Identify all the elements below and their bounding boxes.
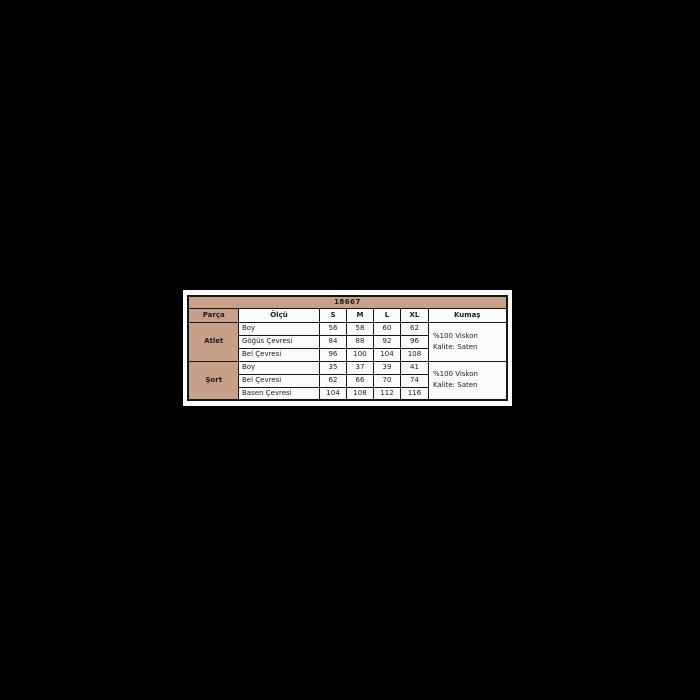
size-value: 104 [319,387,346,400]
size-chart-table: 18667 Parça Ölçü S M L XL Kumaş Atlet Bo… [187,295,507,401]
size-value: 60 [373,322,400,335]
table-row: Atlet Boy 56 58 60 62 %100 Viskon Kalite… [188,322,506,335]
fabric-cell-atlet: %100 Viskon Kalite: Saten [428,322,506,361]
measure-label: Göğüs Çevresi [238,335,319,348]
size-value: 70 [373,374,400,387]
size-chart-panel: 18667 Parça Ölçü S M L XL Kumaş Atlet Bo… [183,290,512,406]
size-value: 56 [319,322,346,335]
size-value: 112 [373,387,400,400]
size-value: 66 [346,374,373,387]
measure-label: Boy [238,322,319,335]
col-header-size-xl: XL [400,308,428,322]
table-title-row: 18667 [188,296,506,308]
fabric-line: Kalite: Saten [433,344,504,351]
size-value: 35 [319,361,346,374]
fabric-cell-sort: %100 Viskon Kalite: Saten [428,361,506,400]
col-header-kumas: Kumaş [428,308,506,322]
group-name-atlet: Atlet [188,322,238,361]
measure-label: Bel Çevresi [238,348,319,361]
size-value: 37 [346,361,373,374]
size-value: 62 [400,322,428,335]
size-value: 104 [373,348,400,361]
col-header-size-l: L [373,308,400,322]
col-header-size-s: S [319,308,346,322]
size-value: 100 [346,348,373,361]
size-value: 96 [319,348,346,361]
size-value: 108 [346,387,373,400]
fabric-line: %100 Viskon [433,371,504,378]
size-value: 41 [400,361,428,374]
table-header-row: Parça Ölçü S M L XL Kumaş [188,308,506,322]
size-value: 84 [319,335,346,348]
fabric-line: Kalite: Saten [433,382,504,389]
group-name-sort: Şort [188,361,238,400]
size-value: 108 [400,348,428,361]
size-value: 62 [319,374,346,387]
measure-label: Bel Çevresi [238,374,319,387]
table-row: Şort Boy 35 37 39 41 %100 Viskon Kalite:… [188,361,506,374]
product-code: 18667 [188,296,506,308]
size-value: 39 [373,361,400,374]
size-value: 88 [346,335,373,348]
col-header-parca: Parça [188,308,238,322]
col-header-olcu: Ölçü [238,308,319,322]
col-header-size-m: M [346,308,373,322]
size-value: 116 [400,387,428,400]
size-value: 58 [346,322,373,335]
measure-label: Boy [238,361,319,374]
fabric-line: %100 Viskon [433,333,504,340]
size-value: 96 [400,335,428,348]
size-value: 92 [373,335,400,348]
measure-label: Basen Çevresi [238,387,319,400]
size-value: 74 [400,374,428,387]
